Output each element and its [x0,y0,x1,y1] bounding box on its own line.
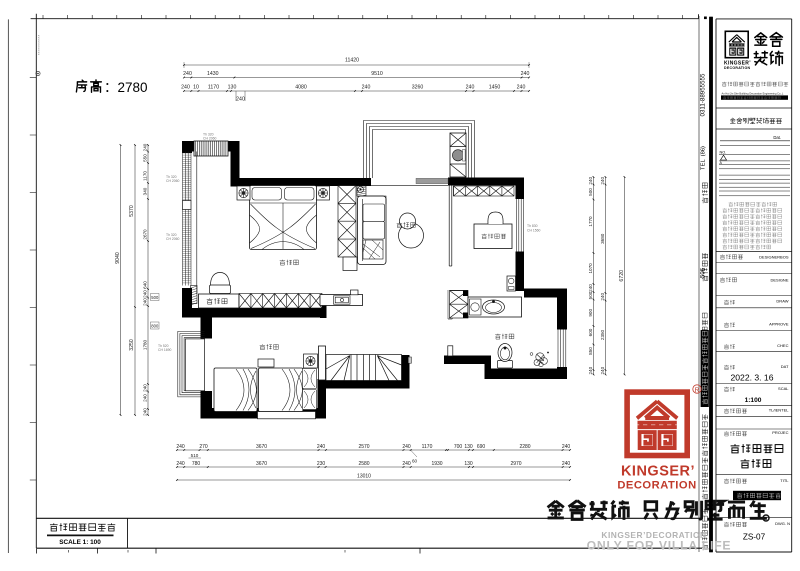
svg-text:240: 240 [562,461,571,467]
svg-text:240: 240 [183,71,192,77]
svg-text:2022. 3. 16: 2022. 3. 16 [730,373,773,383]
svg-text:KINGSER’: KINGSER’ [621,464,695,480]
svg-text:240: 240 [517,85,526,91]
svg-text:240: 240 [362,85,371,91]
svg-text:ONLY FOR VILLA LIFE: ONLY FOR VILLA LIFE [587,539,732,553]
svg-text:240: 240 [562,444,571,450]
svg-text:1770: 1770 [588,216,593,227]
svg-text:13010: 13010 [357,474,371,480]
svg-text:240: 240 [317,444,326,450]
svg-text:240: 240 [176,444,185,450]
svg-text:CH 2060: CH 2060 [203,137,216,141]
svg-text:2570: 2570 [358,444,369,450]
svg-text:2670: 2670 [143,229,148,240]
svg-text:900: 900 [588,309,593,317]
svg-text:SCALE 1: 100: SCALE 1: 100 [59,539,101,546]
svg-text:240: 240 [588,177,593,185]
svg-text:NO.: NO. [720,150,727,154]
svg-text:ZS-07: ZS-07 [743,533,766,542]
svg-text:CH 1690: CH 1690 [158,348,171,352]
svg-text:X X X X X X X X X X: X X X X X X X X X X [38,34,40,55]
svg-text:5370: 5370 [129,205,135,217]
svg-text:700: 700 [454,444,463,450]
svg-text:130: 130 [464,461,473,467]
svg-text:2580: 2580 [358,461,369,467]
svg-text:An Hui Jin She Building Decora: An Hui Jin She Building Decoration Engin… [722,92,784,96]
svg-text:SCAL: SCAL [778,386,789,391]
svg-text:3670: 3670 [256,461,267,467]
svg-text:CH 2060: CH 2060 [166,237,179,241]
svg-text:240: 240 [402,444,411,450]
svg-text:CH 2060: CH 2060 [166,179,179,183]
svg-text:1170: 1170 [422,444,433,450]
svg-text:TITL: TITL [780,478,789,483]
svg-text:11420: 11420 [345,58,359,64]
svg-text:240: 240 [143,143,148,151]
svg-text:130: 130 [228,85,237,91]
svg-text:1:100: 1:100 [745,397,762,404]
svg-text:240: 240 [402,461,411,467]
svg-text:500: 500 [151,295,159,300]
svg-text:800: 800 [151,324,159,329]
svg-text:240: 240 [143,384,148,392]
svg-text:：2780: ：2780 [104,80,148,95]
svg-text:3680: 3680 [600,233,605,244]
svg-text:Th 830: Th 830 [527,224,538,228]
svg-text:DECORATION: DECORATION [724,66,751,70]
svg-text:1170: 1170 [208,85,219,91]
svg-text:240: 240 [600,366,605,374]
svg-text:600: 600 [588,328,593,336]
svg-text:4080: 4080 [295,85,307,91]
svg-text:240: 240 [600,293,605,301]
svg-text:240: 240 [236,97,245,103]
svg-text:2970: 2970 [510,461,521,467]
svg-text:506: 506 [701,267,707,278]
svg-text:3260: 3260 [412,85,424,91]
svg-text:1430: 1430 [207,71,219,77]
svg-text:APPROVE: APPROVE [769,321,789,326]
svg-text:240: 240 [521,71,530,77]
svg-text:240: 240 [181,85,190,91]
svg-text:0311-88955555: 0311-88955555 [700,73,707,116]
svg-text:R: R [695,387,700,394]
svg-text:DESIGNE: DESIGNE [770,277,788,282]
svg-text:1930: 1930 [431,461,442,467]
svg-text:850: 850 [588,347,593,355]
svg-text:PROJEC: PROJEC [772,430,788,435]
svg-text:1450: 1450 [489,85,501,91]
svg-text:DWG. N: DWG. N [775,521,790,526]
svg-text:1170: 1170 [143,171,148,181]
svg-text:130: 130 [464,444,473,450]
svg-text:240: 240 [143,298,148,306]
svg-text:1780: 1780 [143,339,148,350]
svg-text:240: 240 [143,290,148,298]
svg-text:9040: 9040 [115,252,121,264]
svg-text:Dat.: Dat. [773,135,781,140]
svg-text:2280: 2280 [519,444,530,450]
svg-text:240: 240 [600,177,605,185]
svg-text:DAT: DAT [781,364,789,369]
svg-text:240: 240 [176,461,185,467]
svg-text:TEL (86): TEL (86) [701,146,707,170]
svg-text:1070: 1070 [588,263,593,274]
svg-text:9510: 9510 [371,71,383,77]
svg-text:690: 690 [477,444,486,450]
svg-text:550: 550 [143,154,148,162]
svg-text:640: 640 [143,281,148,289]
svg-text:270: 270 [199,444,208,450]
svg-text:DRAW: DRAW [776,299,788,304]
svg-text:60: 60 [412,459,418,464]
svg-text:230: 230 [317,461,326,467]
svg-text:3670: 3670 [256,444,267,450]
svg-text:780: 780 [192,461,201,467]
svg-text:6720: 6720 [619,270,625,282]
svg-text:500: 500 [588,291,593,299]
svg-text:240: 240 [466,85,475,91]
svg-text:CH 1560: CH 1560 [527,229,540,233]
svg-text:240: 240 [588,366,593,374]
svg-text:340: 340 [143,187,148,195]
svg-text:240: 240 [588,284,593,292]
svg-text:240: 240 [143,394,148,402]
svg-text:3250: 3250 [129,339,135,351]
svg-text:10: 10 [193,85,199,91]
svg-text:500: 500 [588,188,593,196]
svg-text:DECORATION: DECORATION [617,480,696,492]
svg-text:2350: 2350 [600,329,605,340]
svg-text:240: 240 [143,408,148,416]
svg-text:510: 510 [191,453,199,458]
svg-text:DESIGNERBOS: DESIGNERBOS [759,254,789,259]
svg-text:CHEC: CHEC [777,343,788,348]
svg-text:TL/IENTEL: TL/IENTEL [769,407,790,412]
